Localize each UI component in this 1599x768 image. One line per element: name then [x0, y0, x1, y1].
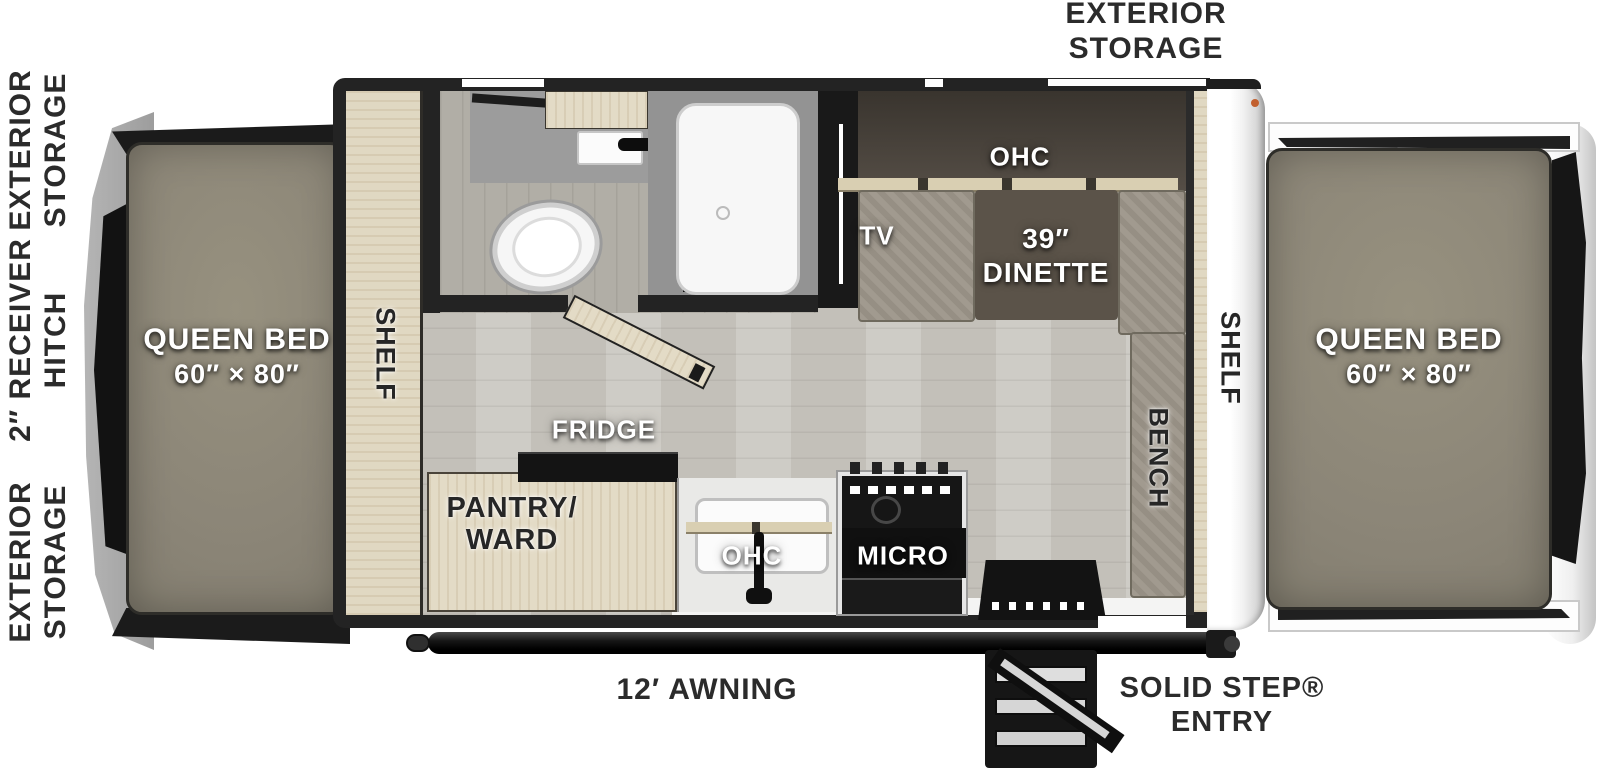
micro-label: MICRO [857, 541, 949, 572]
bench-label: BENCH [1143, 407, 1174, 508]
kitchen-ohc-label: OHC [722, 541, 783, 572]
tv-label: TV [859, 221, 894, 252]
dinette-ohc-label: OHC [990, 142, 1051, 173]
exterior-storage-door-slit [1048, 79, 1206, 86]
cooktop-vents [850, 486, 954, 494]
rear-cap-top-edge [1207, 79, 1261, 89]
rear-wall [1186, 91, 1194, 615]
label-receiver-hitch: 2″ RECEIVER HITCH [3, 238, 73, 442]
rear-bed-size: 60″ × 80″ [1315, 358, 1502, 390]
dinette-label: 39″ DINETTE [983, 222, 1110, 290]
shower-drain [716, 206, 730, 220]
range-knob [850, 462, 860, 474]
rear-shelf-label: SHELF [1215, 311, 1246, 405]
front-bed-size: 60″ × 80″ [143, 358, 330, 390]
tv-cabinet [818, 91, 858, 308]
window-slit-bathroom [462, 79, 544, 87]
cooktop [842, 476, 962, 528]
rear-tent-fabric [1552, 152, 1586, 564]
entry-label: SOLID STEP® ENTRY [1120, 671, 1325, 739]
oven [842, 578, 962, 614]
window-slit-dinette [925, 79, 943, 87]
label-exterior-storage-front-bottom: EXTERIOR STORAGE [3, 481, 73, 642]
range-knob [894, 462, 904, 474]
burner [871, 496, 901, 524]
awning-label: 12′ AWNING [616, 673, 797, 707]
marker-dot [1251, 99, 1259, 107]
pantry-label: PANTRY/ WARD [446, 492, 577, 556]
awning-tube [428, 632, 1232, 654]
rear-wall-trim [1194, 91, 1207, 612]
shower-tray [676, 103, 800, 295]
kitchen-faucet-base [746, 588, 772, 604]
front-bed-label: QUEEN BED 60″ × 80″ [143, 322, 330, 390]
label-exterior-storage-top: EXTERIOR STORAGE [1065, 0, 1226, 66]
range-knob [872, 462, 882, 474]
floorplan: EXTERIOR STORAGE 2″ RECEIVER HITCH EXTER… [0, 0, 1599, 768]
dinette-seat-left [858, 190, 975, 322]
medicine-cabinet [545, 91, 648, 129]
entry-door-opening [1098, 616, 1186, 628]
dinette-seat-right [1118, 190, 1186, 335]
fridge-counter [518, 452, 678, 482]
awning-end-cap-left [406, 634, 430, 652]
front-bed-name: QUEEN BED [143, 322, 330, 358]
door-handle [688, 363, 705, 382]
range-knob [938, 462, 948, 474]
rear-bed-label: QUEEN BED 60″ × 80″ [1315, 322, 1502, 390]
furnace-vents [992, 602, 1094, 610]
bathroom-wall-bottom-left [440, 295, 568, 312]
bathroom-wall-left [423, 91, 440, 313]
step-tread [995, 730, 1087, 747]
furnace [978, 560, 1106, 620]
range-knob [916, 462, 926, 474]
fridge-label: FRIDGE [552, 415, 656, 446]
label-exterior-storage-front-top: EXTERIOR STORAGE [3, 69, 73, 230]
front-shelf-label: SHELF [370, 307, 401, 401]
rear-bed-name: QUEEN BED [1315, 322, 1502, 358]
awning-end-cap-right [1224, 636, 1240, 652]
tv-screen [839, 124, 843, 284]
bathroom-wall-bottom-right [638, 295, 818, 312]
